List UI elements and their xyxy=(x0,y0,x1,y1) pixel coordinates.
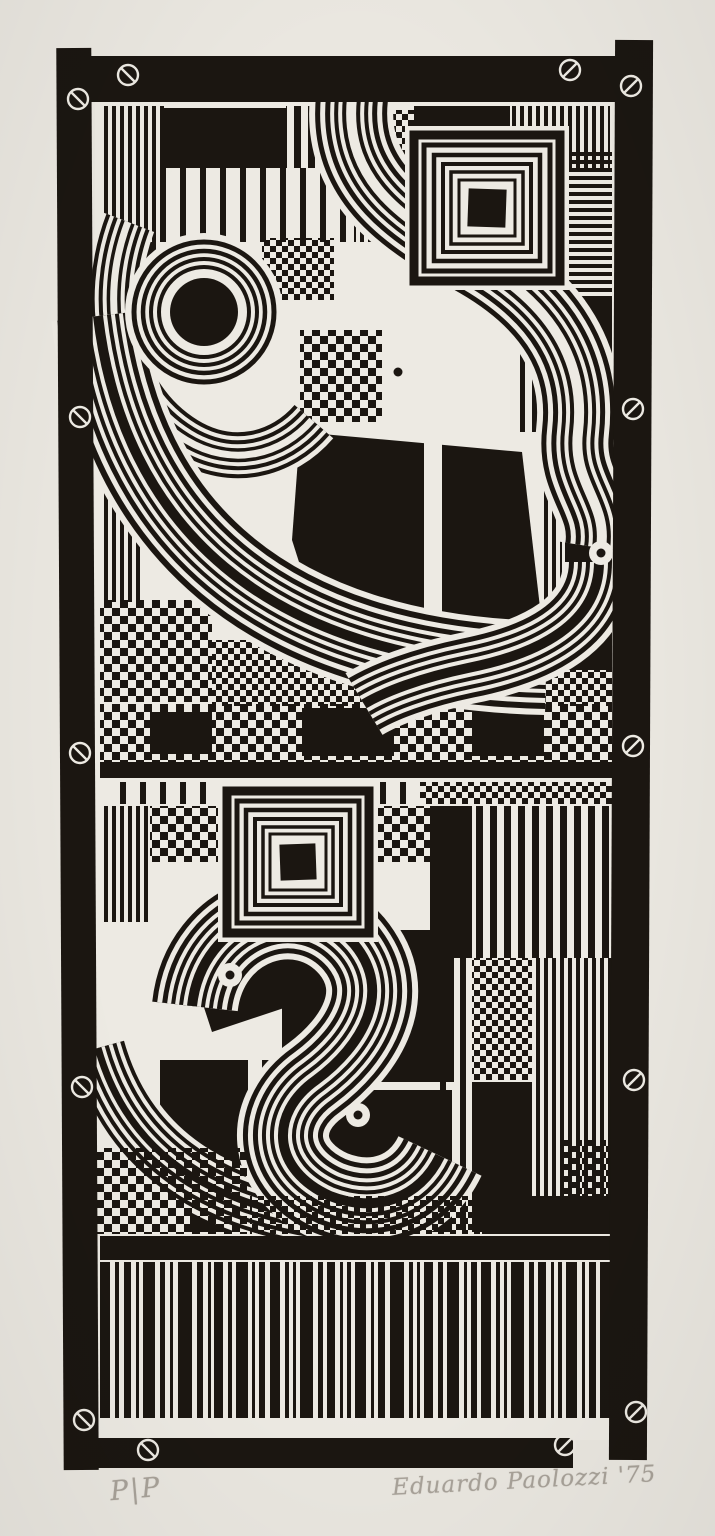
barcode-bar xyxy=(390,1262,404,1418)
barcode-bar xyxy=(538,1262,546,1418)
barcode-bar xyxy=(259,1262,265,1418)
barcode-bar xyxy=(582,1262,585,1418)
stripe-patch xyxy=(470,806,612,958)
woodcut-print-graphic xyxy=(0,0,715,1536)
barcode-bar xyxy=(208,1262,211,1418)
concentric-circle-motifs xyxy=(125,233,283,391)
barcode-bar xyxy=(347,1262,351,1418)
square-core xyxy=(279,843,316,880)
barcode-bar xyxy=(371,1262,374,1418)
checkerboard-patch xyxy=(472,958,532,1080)
frame-left-bar xyxy=(56,48,98,1470)
barcode-bar xyxy=(558,1262,562,1418)
barcode-bar xyxy=(236,1262,248,1418)
barcode-bar xyxy=(504,1262,507,1418)
barcode-bar xyxy=(481,1262,491,1418)
frame-top-bar xyxy=(88,56,628,102)
barcode-bar xyxy=(471,1262,477,1418)
barcode-bar xyxy=(529,1262,534,1418)
barcode-bar xyxy=(464,1262,467,1418)
eye-dot xyxy=(597,549,606,558)
barcode-bar xyxy=(417,1262,420,1418)
barcode-bar xyxy=(270,1262,280,1418)
barcode-bar xyxy=(252,1262,255,1418)
barcode-bar xyxy=(447,1262,459,1418)
barcode-bar xyxy=(424,1262,433,1418)
ink-block xyxy=(150,712,212,754)
checkerboard-patch xyxy=(420,782,612,804)
eye-dot xyxy=(354,1111,363,1120)
ink-block xyxy=(482,1196,612,1234)
barcode-bar xyxy=(496,1262,500,1418)
barcode-bar xyxy=(228,1262,232,1418)
frame-right-bar xyxy=(609,40,653,1460)
artwork-photo: P|P Eduardo Paolozzi '75 xyxy=(0,0,715,1536)
checkerboard-patch xyxy=(100,600,212,702)
barcode-bar xyxy=(589,1262,596,1418)
ink-block xyxy=(164,108,286,168)
barcode-bar xyxy=(300,1262,313,1418)
checkerboard-patch xyxy=(560,1140,612,1198)
barcode-bar xyxy=(214,1262,223,1418)
square-core xyxy=(467,188,506,227)
barcode-bar xyxy=(293,1262,296,1418)
checkerboard-patch xyxy=(300,330,382,422)
ink-bar xyxy=(100,1236,612,1260)
barcode-bar xyxy=(136,1262,139,1418)
barcode-bar xyxy=(170,1262,173,1418)
barcode-bar xyxy=(160,1262,165,1418)
barcode-bar xyxy=(124,1262,131,1418)
barcode-bar xyxy=(285,1262,289,1418)
eye-dot xyxy=(394,368,403,377)
barcode-bar xyxy=(318,1262,323,1418)
barcode-bar xyxy=(409,1262,413,1418)
checkerboard-patch xyxy=(250,1196,482,1234)
barcode-bar xyxy=(143,1262,155,1418)
barcode-bar xyxy=(115,1262,119,1418)
barcode-bar xyxy=(100,1262,110,1418)
barcode-bar xyxy=(551,1262,554,1418)
barcode-bar xyxy=(340,1262,343,1418)
eye-dot xyxy=(226,971,235,980)
ink-block xyxy=(472,710,544,756)
barcode-bar xyxy=(438,1262,443,1418)
barcode-bar xyxy=(178,1262,192,1418)
barcode-bar xyxy=(327,1262,335,1418)
barcode-bar xyxy=(600,1262,610,1418)
barcode-bar xyxy=(355,1262,366,1418)
barcode-bar xyxy=(197,1262,203,1418)
ink-bar xyxy=(100,762,612,778)
frame-bottom-bar xyxy=(95,1438,573,1468)
stripe-patch xyxy=(100,806,150,922)
barcode-bar xyxy=(511,1262,524,1418)
barcode-bar xyxy=(378,1262,385,1418)
barcode-bar xyxy=(566,1262,577,1418)
checkerboard-patch xyxy=(95,1148,247,1234)
ring-core xyxy=(170,278,238,346)
